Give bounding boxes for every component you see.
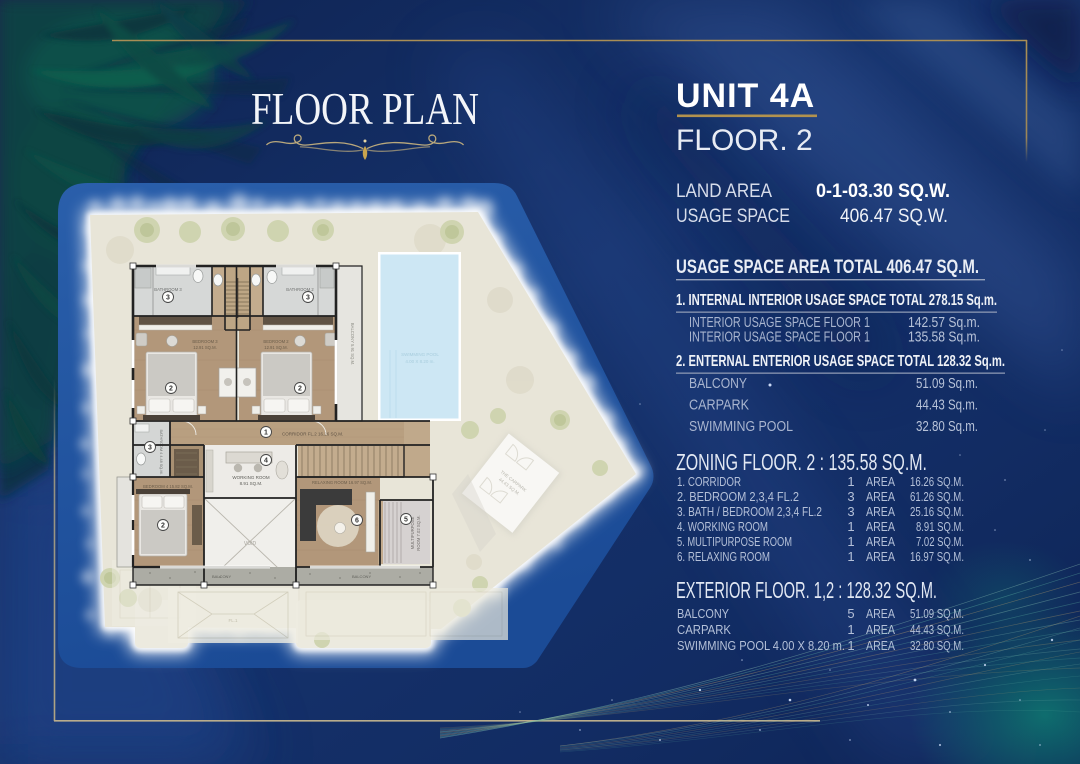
svg-text:FL.1: FL.1 xyxy=(228,618,238,623)
svg-text:4. WORKING ROOM: 4. WORKING ROOM xyxy=(677,519,768,534)
svg-text:44.43 Sq.m.: 44.43 Sq.m. xyxy=(916,398,978,414)
svg-text:1: 1 xyxy=(847,549,854,564)
svg-text:AREA: AREA xyxy=(866,549,895,564)
svg-text:1: 1 xyxy=(847,474,854,489)
svg-text:FLOOR PLAN: FLOOR PLAN xyxy=(251,83,479,134)
svg-text:SWIMMING POOL: SWIMMING POOL xyxy=(401,352,439,357)
svg-text:AREA: AREA xyxy=(866,606,895,621)
svg-text:2: 2 xyxy=(298,386,302,393)
svg-text:1. CORRIDOR: 1. CORRIDOR xyxy=(677,474,741,489)
svg-text:1. INTERNAL INTERIOR USAGE SPA: 1. INTERNAL INTERIOR USAGE SPACE TOTAL 2… xyxy=(676,292,997,309)
svg-text:BALCONY: BALCONY xyxy=(212,574,231,579)
svg-text:135.58 Sq.m.: 135.58 Sq.m. xyxy=(908,330,980,346)
svg-text:2. BEDROOM 2,3,4 FL.2: 2. BEDROOM 2,3,4 FL.2 xyxy=(677,489,799,504)
svg-text:25.16 SQ.M.: 25.16 SQ.M. xyxy=(910,504,964,519)
svg-text:7.02 SQ.M.: 7.02 SQ.M. xyxy=(916,534,964,549)
svg-text:AREA: AREA xyxy=(866,474,895,489)
svg-text:61.26 SQ.M.: 61.26 SQ.M. xyxy=(910,489,964,504)
svg-text:BALCONY: BALCONY xyxy=(677,606,729,621)
svg-text:1: 1 xyxy=(264,430,268,437)
svg-text:12.91 SQ.M.: 12.91 SQ.M. xyxy=(264,345,288,350)
svg-text:EXTERIOR FLOOR. 1,2 : 128.32 S: EXTERIOR FLOOR. 1,2 : 128.32 SQ.M. xyxy=(676,577,937,603)
svg-text:406.47 SQ.W.: 406.47 SQ.W. xyxy=(840,205,948,227)
svg-text:3: 3 xyxy=(847,489,854,504)
svg-text:4.00 X 8.20 m.: 4.00 X 8.20 m. xyxy=(405,359,434,364)
svg-text:UNIT 4A: UNIT 4A xyxy=(676,77,815,115)
svg-text:CORRIDOR FL.2 16.26 SQ.M.: CORRIDOR FL.2 16.26 SQ.M. xyxy=(282,432,343,437)
svg-text:BALCONY: BALCONY xyxy=(352,574,371,579)
svg-text:SWIMMING POOL: SWIMMING POOL xyxy=(689,419,793,435)
svg-text:WORKING ROOM: WORKING ROOM xyxy=(232,475,269,480)
svg-text:8.91 SQ.M.: 8.91 SQ.M. xyxy=(240,481,263,486)
svg-text:16.26 SQ.M.: 16.26 SQ.M. xyxy=(910,474,964,489)
svg-text:51.09 Sq.m.: 51.09 Sq.m. xyxy=(916,376,978,392)
svg-text:8.91 SQ.M.: 8.91 SQ.M. xyxy=(916,519,964,534)
svg-text:4: 4 xyxy=(264,458,268,465)
svg-text:INTERIOR USAGE SPACE FLOOR 1: INTERIOR USAGE SPACE FLOOR 1 xyxy=(689,330,870,346)
svg-text:AREA: AREA xyxy=(866,638,895,653)
svg-text:AREA: AREA xyxy=(866,519,895,534)
svg-text:FLOOR. 2: FLOOR. 2 xyxy=(676,124,813,157)
svg-text:3. BATH / BEDROOM 2,3,4 FL.2: 3. BATH / BEDROOM 2,3,4 FL.2 xyxy=(677,504,822,519)
svg-text:BEDROOM 2: BEDROOM 2 xyxy=(263,339,289,344)
svg-text:2: 2 xyxy=(169,386,173,393)
svg-text:BALCONY 5.91 SQ.M.: BALCONY 5.91 SQ.M. xyxy=(350,323,355,365)
svg-text:AREA: AREA xyxy=(866,534,895,549)
svg-text:BATHROOM 4 4.48 SQ.M.: BATHROOM 4 4.48 SQ.M. xyxy=(159,429,163,474)
svg-text:2: 2 xyxy=(161,523,165,530)
svg-text:AREA: AREA xyxy=(866,489,895,504)
svg-text:BEDROOM 4 15.82 SQ.M.: BEDROOM 4 15.82 SQ.M. xyxy=(143,484,193,489)
svg-text:0-1-03.30 SQ.W.: 0-1-03.30 SQ.W. xyxy=(816,180,950,202)
svg-text:USAGE SPACE: USAGE SPACE xyxy=(676,206,790,227)
svg-text:32.80 Sq.m.: 32.80 Sq.m. xyxy=(916,419,978,435)
svg-text:AREA: AREA xyxy=(866,504,895,519)
svg-text:6: 6 xyxy=(355,518,359,525)
svg-text:VOID: VOID xyxy=(244,541,257,547)
svg-text:CARPARK: CARPARK xyxy=(689,398,749,414)
svg-text:51.09 SQ.M.: 51.09 SQ.M. xyxy=(910,606,964,621)
svg-text:BALCONY: BALCONY xyxy=(689,376,747,392)
svg-text:16.97 SQ.M.: 16.97 SQ.M. xyxy=(910,549,964,564)
svg-text:CARPARK: CARPARK xyxy=(677,622,731,637)
svg-text:1: 1 xyxy=(847,622,854,637)
svg-text:USAGE SPACE AREA TOTAL 406.47: USAGE SPACE AREA TOTAL 406.47 SQ.M. xyxy=(676,257,979,278)
svg-text:3: 3 xyxy=(148,445,152,452)
svg-text:BATHROOM 2: BATHROOM 2 xyxy=(286,287,314,292)
svg-text:1: 1 xyxy=(847,534,854,549)
svg-text:3: 3 xyxy=(306,295,310,302)
svg-text:RELAXING ROOM 16.97 SQ.M.: RELAXING ROOM 16.97 SQ.M. xyxy=(312,480,372,485)
svg-text:2. ENTERNAL ENTERIOR USAGE SPA: 2. ENTERNAL ENTERIOR USAGE SPACE TOTAL 1… xyxy=(676,353,1005,370)
svg-text:SWIMMING POOL 4.00 X 8.20 m.: SWIMMING POOL 4.00 X 8.20 m. xyxy=(677,638,845,653)
svg-text:LAND AREA: LAND AREA xyxy=(676,181,772,202)
svg-text:ZONING FLOOR. 2 : 135.58 SQ.M.: ZONING FLOOR. 2 : 135.58 SQ.M. xyxy=(676,449,927,475)
svg-text:6. RELAXING ROOM: 6. RELAXING ROOM xyxy=(677,549,770,564)
svg-text:1: 1 xyxy=(847,519,854,534)
svg-text:3: 3 xyxy=(847,504,854,519)
svg-text:5. MULTIPURPOSE ROOM: 5. MULTIPURPOSE ROOM xyxy=(677,534,792,549)
svg-text:ROOM 7.02 SQ.M.: ROOM 7.02 SQ.M. xyxy=(416,515,421,550)
svg-text:5: 5 xyxy=(404,517,408,524)
svg-text:5: 5 xyxy=(847,606,854,621)
svg-text:12.91 SQ.M.: 12.91 SQ.M. xyxy=(193,345,217,350)
svg-text:3: 3 xyxy=(166,295,170,302)
svg-text:BEDROOM 3: BEDROOM 3 xyxy=(192,339,218,344)
